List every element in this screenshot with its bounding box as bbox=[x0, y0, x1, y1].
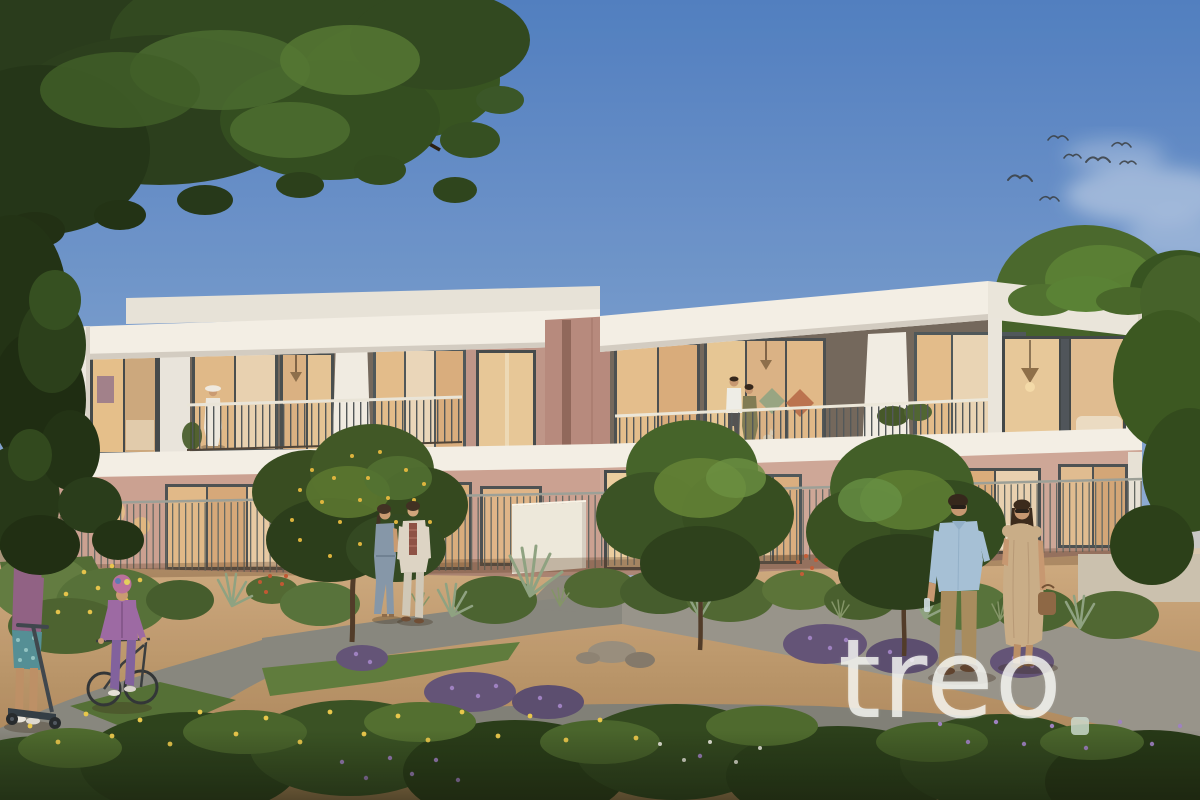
watermark-logo: treo. bbox=[838, 624, 1089, 735]
watermark-dot: . bbox=[1071, 717, 1089, 735]
rendering-scene: treo. bbox=[0, 0, 1200, 800]
watermark-text: treo bbox=[838, 615, 1063, 743]
